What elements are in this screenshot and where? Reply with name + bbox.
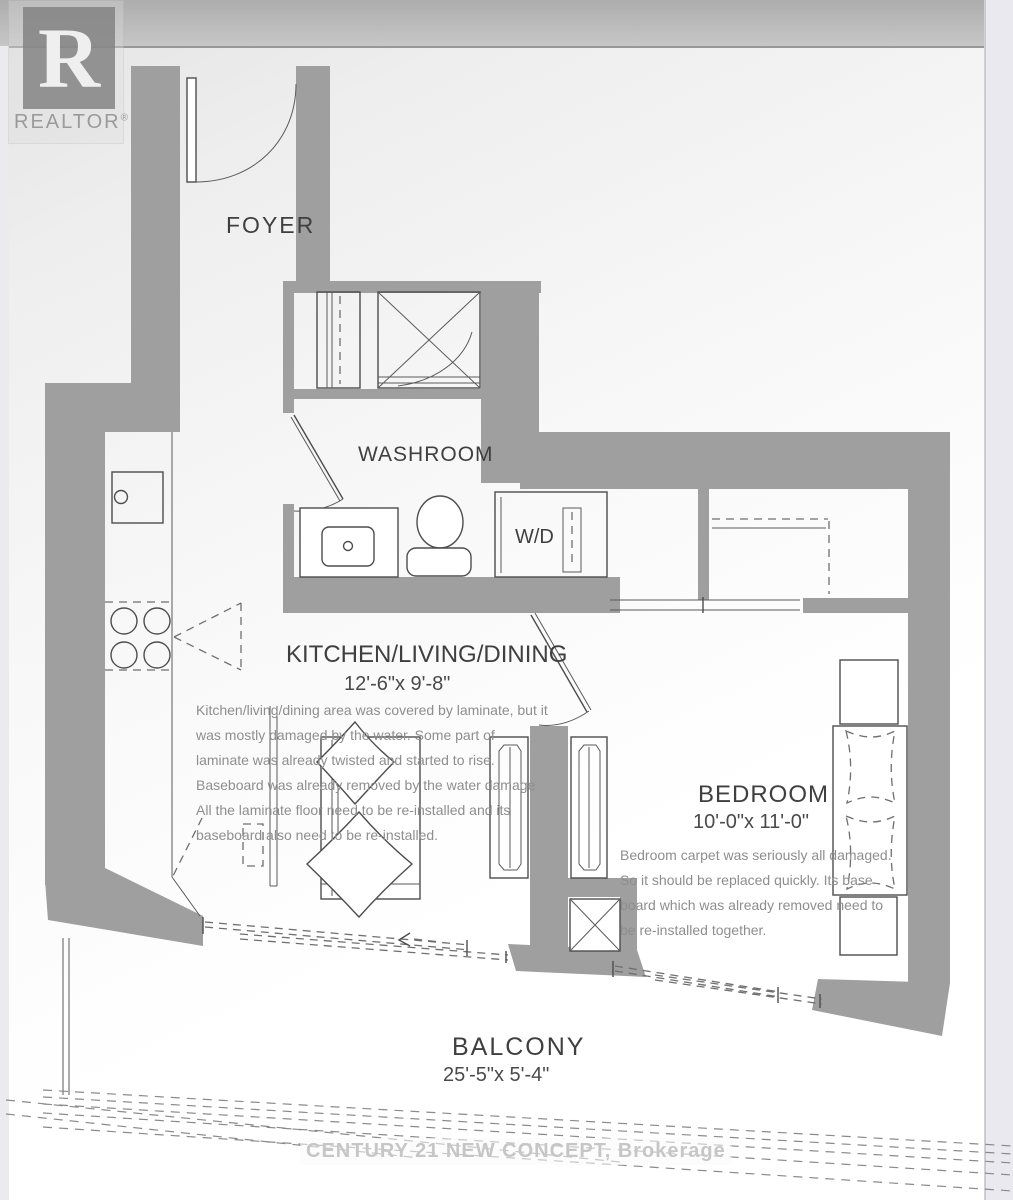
note-line: So it should be replaced quickly. Its ba…: [620, 868, 892, 893]
note-line: was mostly damaged by the water. Some pa…: [196, 723, 548, 748]
bedroom-closet: [610, 519, 829, 613]
note-line: board which was already removed need to: [620, 893, 892, 918]
floor-plan-page: R REALTOR® FOYER WASHROOM W/D KITCHEN/LI…: [0, 0, 1013, 1200]
realtor-watermark: R REALTOR®: [8, 0, 124, 144]
room-label-bedroom: BEDROOM: [698, 781, 829, 809]
bedroom-balcony-door: [613, 961, 822, 1008]
living-balcony-door: [203, 917, 508, 963]
room-dimensions-balcony: 25'-5"x 5'-4": [443, 1064, 549, 1087]
room-label-laundry: W/D: [515, 526, 554, 549]
note-line: Kitchen/living/dining area was covered b…: [196, 698, 548, 723]
note-line: baseboard also need to be re-installed.: [196, 823, 548, 848]
media-unit-bedroom: [571, 737, 607, 878]
room-label-foyer: FOYER: [226, 212, 315, 239]
note-line: Bedroom carpet was seriously all damaged…: [620, 843, 892, 868]
shower: [378, 292, 480, 388]
bedroom-damage-note: Bedroom carpet was seriously all damaged…: [620, 843, 892, 943]
kitchen-counter: [112, 432, 200, 916]
room-dimensions-kitchen: 12'-6"x 9'-8": [344, 673, 450, 696]
toilet: [407, 496, 471, 576]
fridge-swing: [174, 603, 241, 670]
note-line: laminate was already twisted and started…: [196, 748, 548, 773]
room-label-washroom: WASHROOM: [358, 443, 494, 467]
washroom-door: [291, 415, 343, 511]
registered-mark: ®: [121, 112, 130, 123]
kitchen-damage-note: Kitchen/living/dining area was covered b…: [196, 698, 548, 848]
brokerage-watermark: CENTURY 21 NEW CONCEPT, Brokerage: [300, 1138, 732, 1165]
realtor-logo-text: REALTOR®: [11, 111, 133, 134]
floor-plan-drawing: [0, 0, 1013, 1200]
entry-door: [187, 78, 296, 182]
room-label-kitchen-living-dining: KITCHEN/LIVING/DINING: [286, 641, 567, 669]
realtor-logo-icon: R: [23, 7, 115, 109]
shaft-column: [570, 899, 620, 951]
foyer-closet: [317, 292, 360, 388]
stove: [105, 602, 172, 670]
note-line: All the laminate floor need to be re-ins…: [196, 798, 548, 823]
room-dimensions-bedroom: 10'-0"x 11'-0": [693, 811, 809, 834]
room-label-balcony: BALCONY: [452, 1033, 585, 1062]
note-line: Baseboard was already removed by the wat…: [196, 773, 548, 798]
vanity-sink: [300, 508, 398, 577]
realtor-logo-letter: R: [38, 15, 100, 101]
note-line: be re-installed together.: [620, 918, 892, 943]
